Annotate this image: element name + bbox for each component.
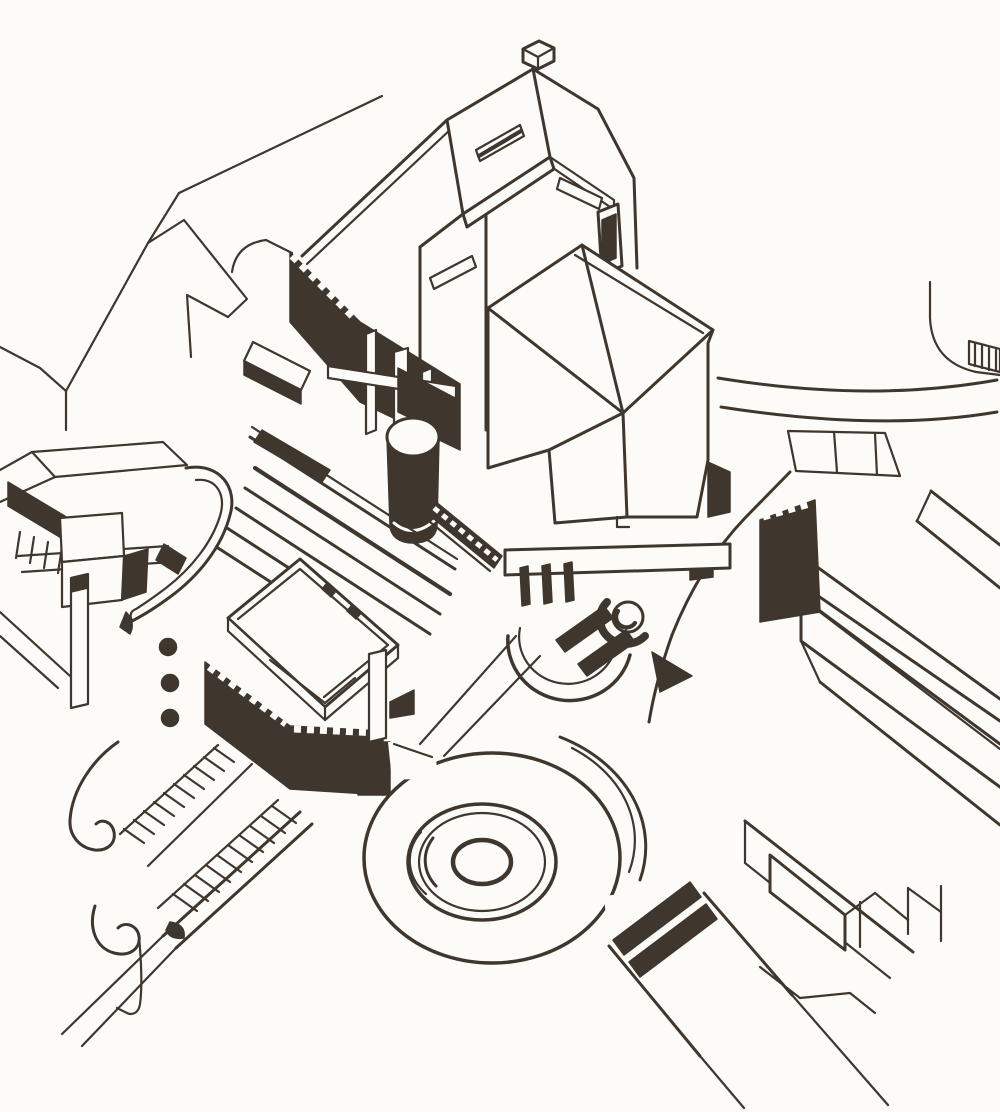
left-wing-buildings: left wing: bars, box building, curved ra…	[0, 442, 232, 727]
hatched-service-block: small hatched service block at right edg…	[969, 341, 1000, 372]
plaza-centre	[453, 840, 511, 884]
architectural-axonometric-drawing: faint street and roof outlines, top left…	[0, 0, 1000, 1112]
curved-ramp	[132, 467, 232, 621]
porthole-window	[162, 675, 179, 692]
stage-apse: semicircular apse with spiral stair and …	[505, 544, 730, 701]
street-lines-top-left: faint street and roof outlines, top left	[0, 96, 382, 430]
porthole-window	[160, 639, 177, 656]
hooked-footpaths: curved hook-ended footpaths, bottom left	[70, 742, 141, 1014]
porthole-window	[162, 710, 179, 727]
pier	[71, 574, 88, 708]
box-building-on-base: box building on dark dentil base	[205, 559, 414, 795]
grand-stairs: hatched outdoor stair bands with kerbs	[62, 745, 312, 1046]
tower-slot-window	[430, 256, 476, 289]
tower-slot-window	[557, 178, 602, 209]
slot-opening	[564, 562, 574, 602]
scanned-drawing-page: faint street and roof outlines, top left…	[0, 0, 1000, 1112]
slot-opening	[520, 566, 530, 606]
slot-opening	[542, 564, 552, 604]
hexagonal-pavilion: hexagonal pavilion with hipped roof	[488, 245, 730, 527]
pedestrian-crossing	[788, 431, 900, 476]
box-roof	[60, 513, 124, 562]
